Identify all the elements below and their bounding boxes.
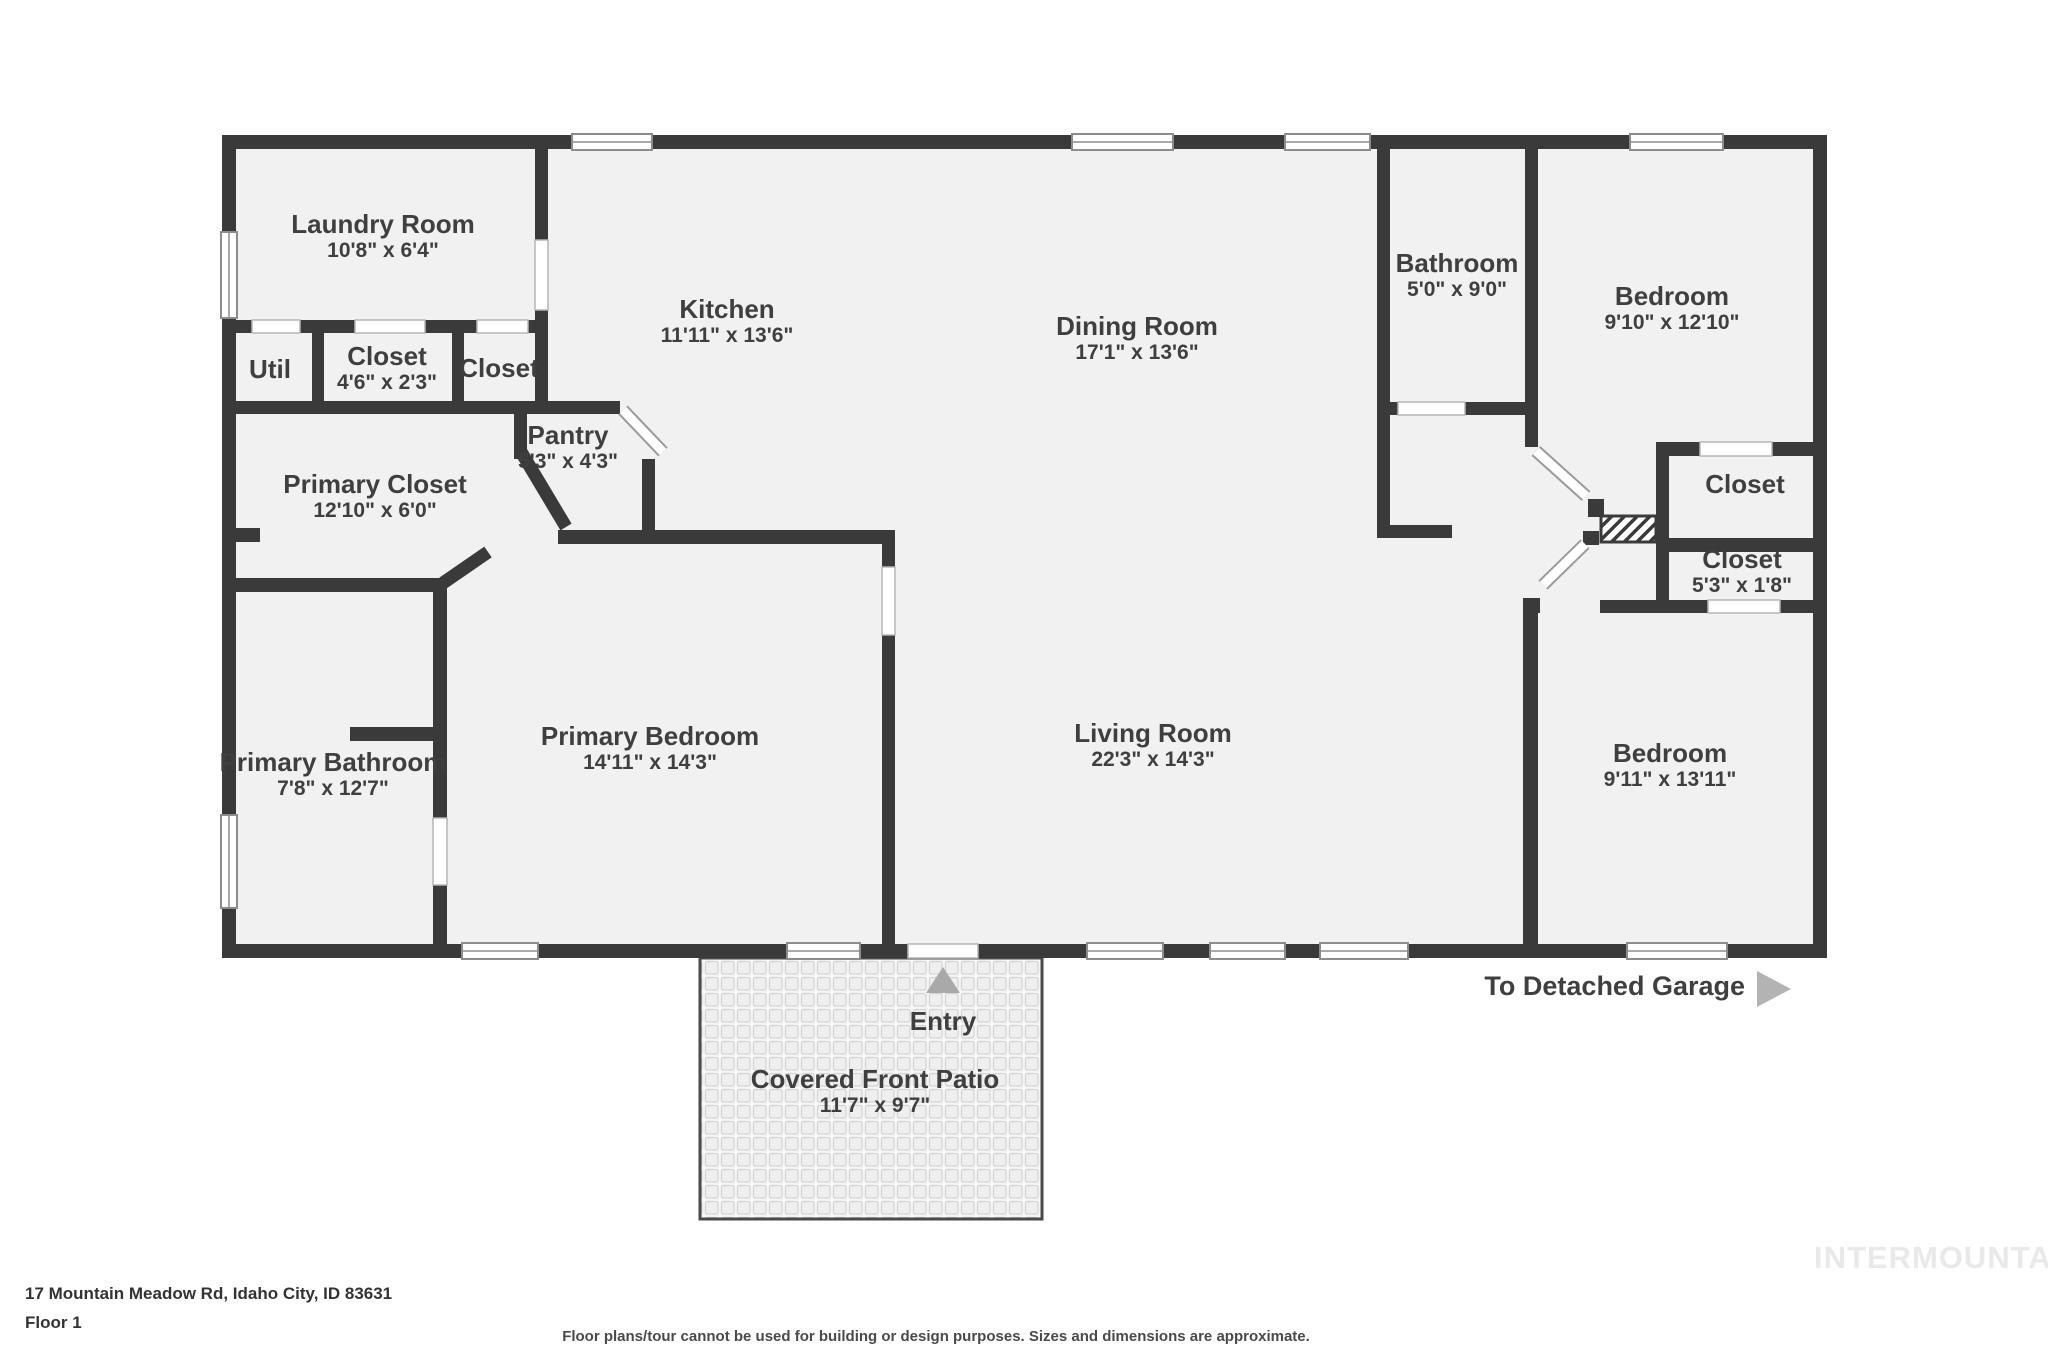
to-garage-label: To Detached Garage xyxy=(1484,971,1745,1002)
floor-plan-page: Laundry Room 10'8" x 6'4" Util Closet 4'… xyxy=(0,0,2048,1365)
floor-plan-drawing xyxy=(0,0,2048,1365)
disclaimer-text: Floor plans/tour cannot be used for buil… xyxy=(562,1328,1310,1345)
covered-patio-area xyxy=(700,958,1042,1219)
intermountain-watermark: INTERMOUNTAIN xyxy=(1814,1240,2048,1276)
garage-arrow-icon xyxy=(1757,971,1791,1007)
address-text: 17 Mountain Meadow Rd, Idaho City, ID 83… xyxy=(25,1284,392,1304)
floor-number-text: Floor 1 xyxy=(25,1313,82,1333)
hatched-chase xyxy=(1601,516,1656,542)
